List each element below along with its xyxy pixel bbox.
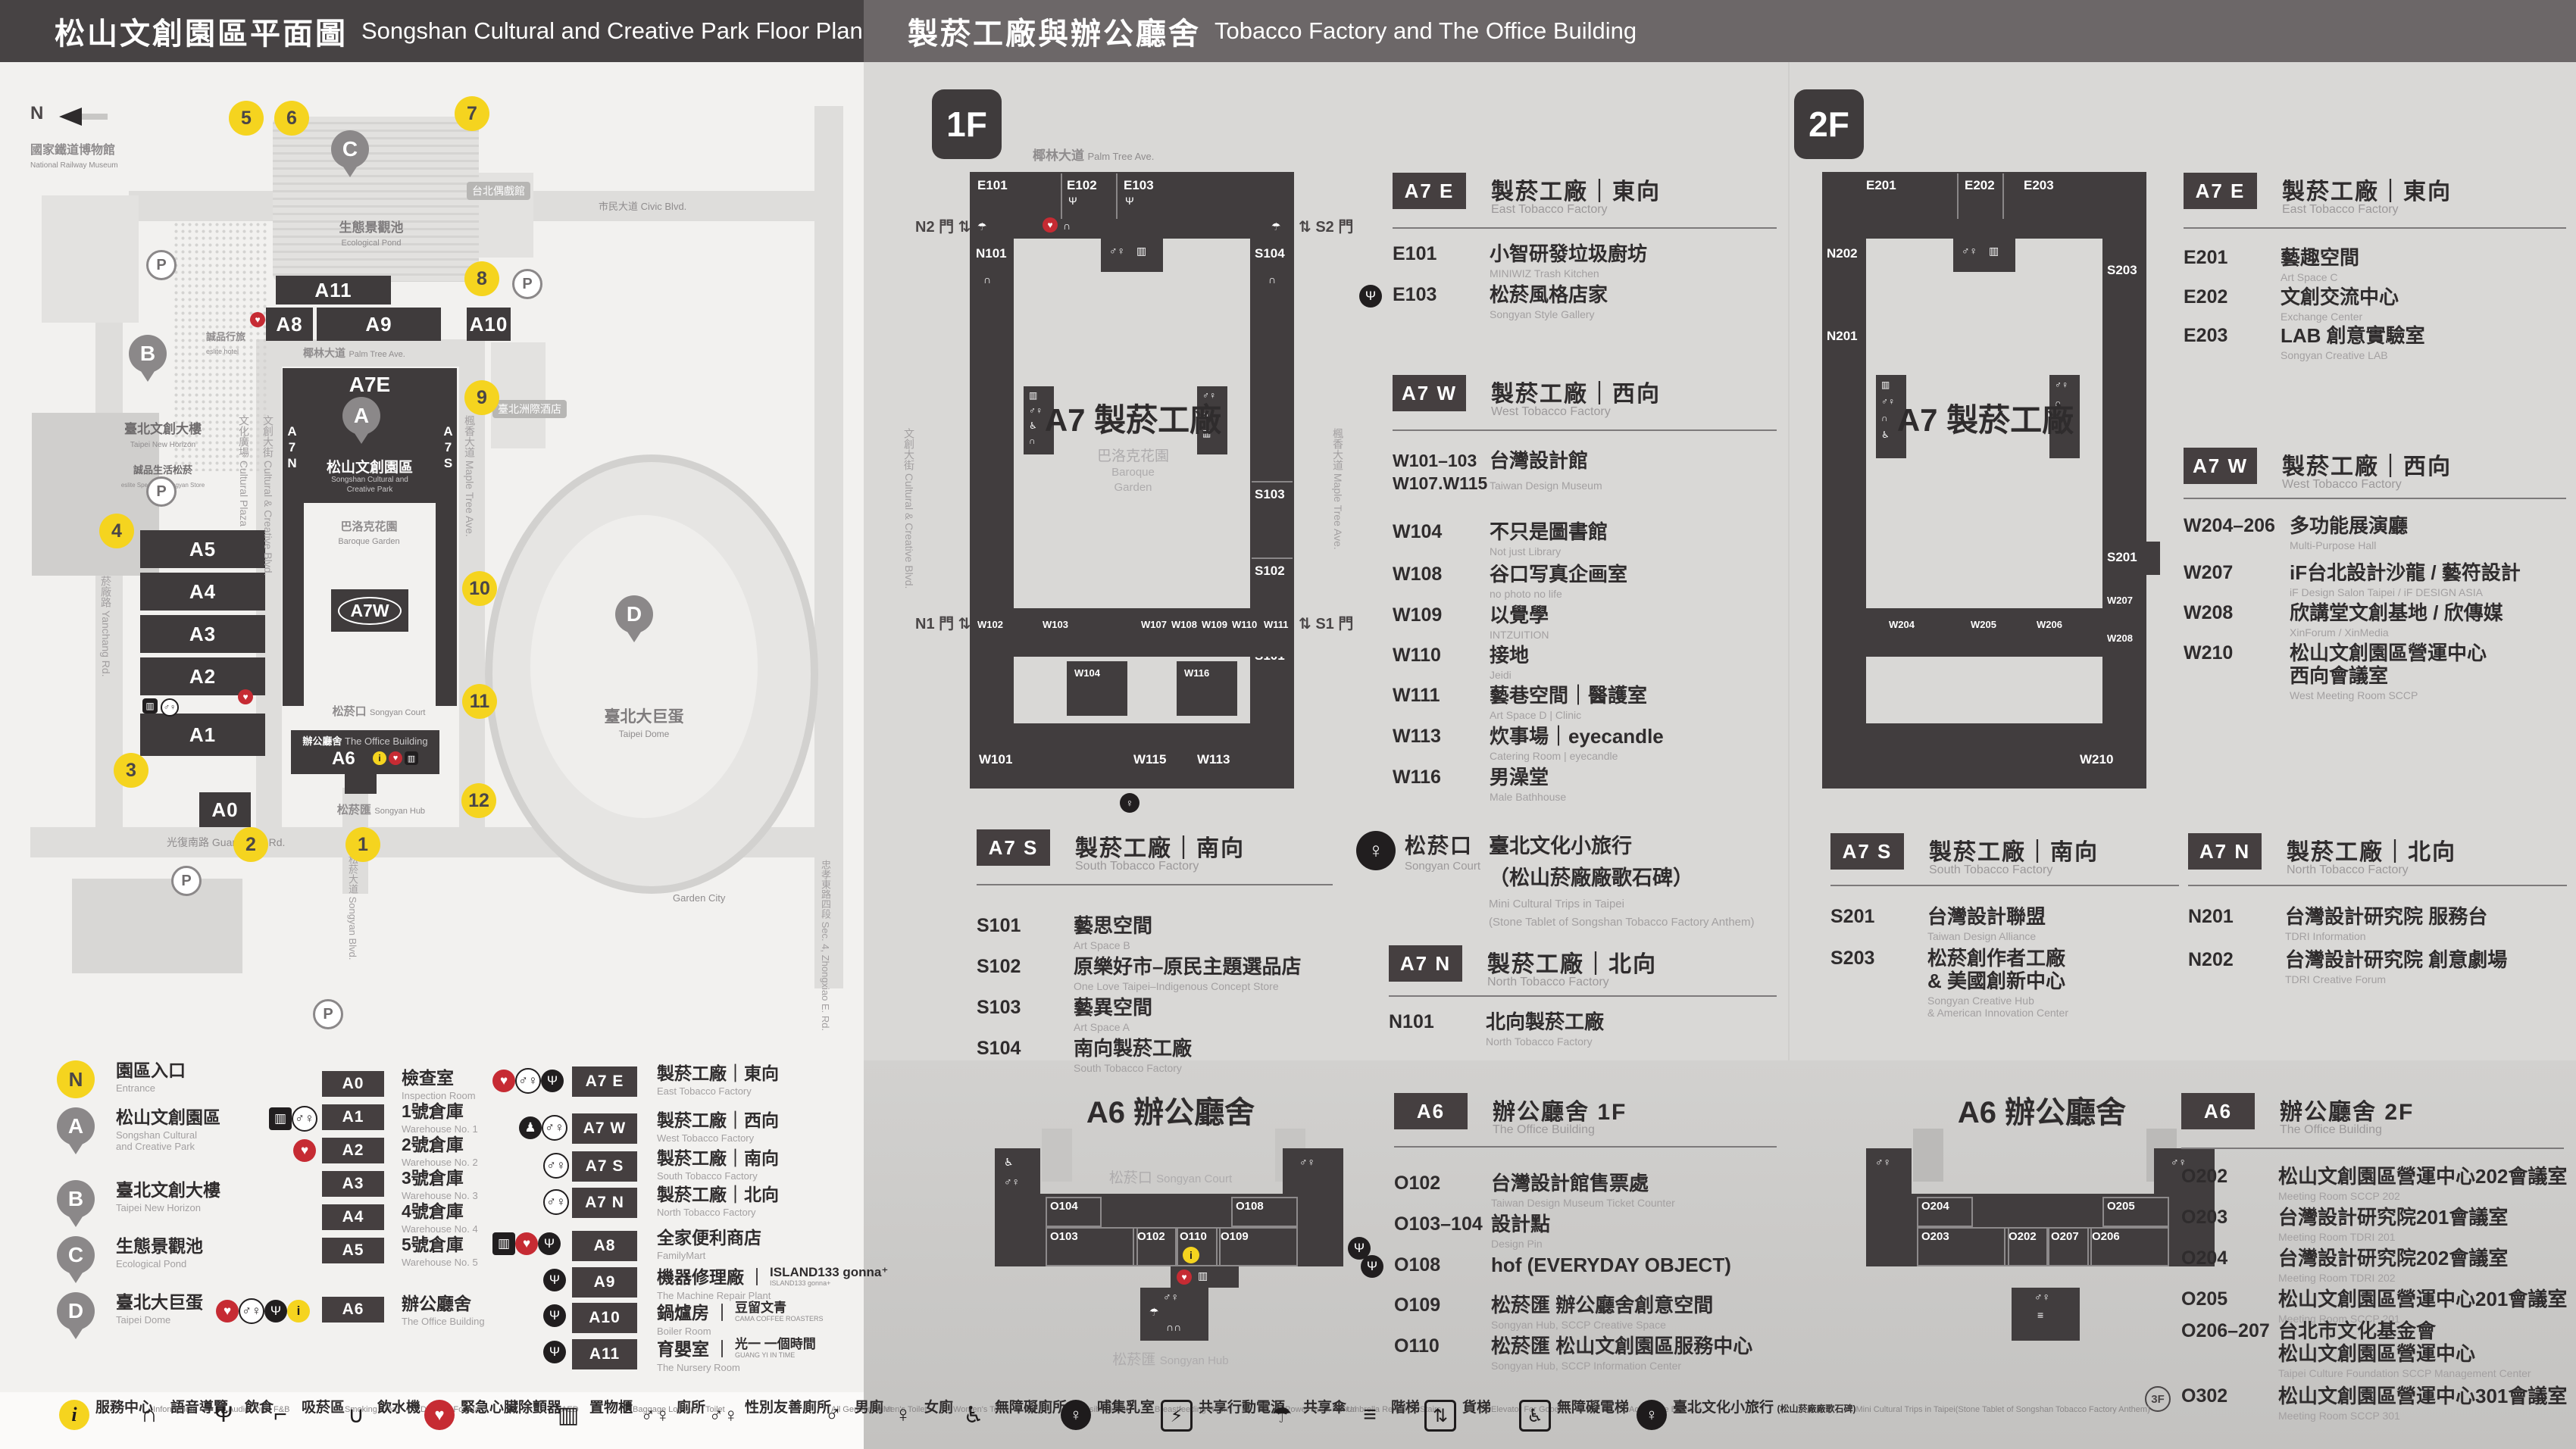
section-title-zh: 製菸工廠｜西向: [2282, 448, 2452, 481]
legend-brand-sub: GUANG YI IN TIME: [735, 1351, 816, 1359]
legend-en: East Tobacco Factory: [657, 1085, 779, 1097]
a6-stub-left: [1913, 1129, 1943, 1182]
building-a2-label: A2: [189, 665, 216, 689]
room-o109: O109: [1216, 1227, 1298, 1266]
room-name-zh: 台灣設計館: [1490, 449, 1602, 472]
audio-tour-icon: ∩∩: [1166, 1321, 1181, 1333]
room-o110: O110: [1175, 1227, 1221, 1266]
room-s104: S104: [1255, 246, 1285, 261]
section-title-zh: 製菸工廠｜南向: [1075, 829, 1245, 863]
room-code: W207: [2184, 561, 2290, 584]
fnb-icon: Ψ: [1125, 195, 1134, 207]
room-o204: O204: [1917, 1197, 1973, 1227]
legend-badge: A6: [322, 1297, 384, 1323]
a6-plan-1f: A6 辦公廳舍 ♿ ♂♀ ♂♀ 松菸口 Songyan Court O104 O…: [981, 1082, 1360, 1377]
room-name-zh: 台灣設計聯盟: [1927, 905, 2046, 928]
room-w205: W205: [1971, 619, 1996, 630]
umbrella-icon: ☂: [1267, 1400, 1297, 1430]
park-label-zh: 松山文創園區: [294, 456, 445, 476]
facility-zh: 臺北文化小旅行: [1673, 1400, 1774, 1416]
a7-west-wing-1f: [970, 239, 1014, 789]
a7-plan-title: A7 製菸工廠: [961, 395, 1305, 441]
room-divider: [2002, 173, 2004, 219]
room-code: W109: [1393, 604, 1490, 626]
room-code: O109: [1394, 1294, 1491, 1316]
section-title-zh: 辦公廳舍 2F: [2280, 1093, 2414, 1126]
info-icon: i: [287, 1300, 310, 1323]
street-creative-blvd: 文創大街 Cultural & Creative Blvd.: [261, 415, 276, 612]
entrance-5: 5: [229, 101, 264, 136]
room-code: S101: [977, 914, 1074, 937]
room-name-en: Catering Room | eyecandle: [1490, 750, 1664, 762]
legend-row-icons: ♥: [293, 1139, 316, 1162]
office-en: The Office Building: [345, 735, 428, 747]
songyan-court-map-label: 松菸口 Songyan Court: [322, 703, 436, 719]
toilet-icon: ♂♀: [543, 1153, 569, 1179]
list-item: S203松菸創作者工廠& 美國創新中心Songyan Creative Hub&…: [1830, 947, 2068, 1019]
room-name-zh2: 松山文創園區營運中心: [2278, 1342, 2531, 1365]
facility-zh: 吸菸區: [302, 1400, 345, 1416]
legend-en: Taipei Dome: [116, 1314, 203, 1326]
list-item: S101藝思空間Art Space B: [977, 914, 1152, 951]
room-o203: O203: [1917, 1227, 2009, 1266]
pond-en: Ecological Pond: [342, 239, 402, 248]
facility-zh: 無障礙廁所: [995, 1400, 1067, 1416]
a7-west-wing: [283, 503, 304, 706]
ecological-pond: [273, 117, 479, 282]
womens-toilet-icon: ♀: [888, 1400, 918, 1430]
room-name-zh: 炊事場｜eyecandle: [1490, 725, 1664, 748]
section-title-en: South Tobacco Factory: [1075, 860, 1199, 873]
horizon-zh: 臺北文創大樓: [124, 422, 202, 436]
room-w207: W207: [2107, 595, 2133, 606]
mens-toilet-icon: ♂: [818, 1400, 849, 1430]
legend-zh: 製菸工廠｜西向: [657, 1110, 779, 1131]
walking-person-icon: ♀: [1637, 1400, 1667, 1430]
legend-en: Boiler Room: [657, 1326, 824, 1337]
room-w110: W110: [1232, 619, 1257, 630]
a6-south-stub: [345, 774, 377, 794]
room-name-zh: 北向製菸工廠: [1486, 1010, 1604, 1033]
court-en: Songyan Court: [370, 708, 425, 717]
room-w208: W208: [2107, 632, 2133, 644]
pin-b: B: [129, 335, 167, 373]
entrance-3: 3: [114, 753, 148, 788]
room-code: W104: [1393, 520, 1490, 543]
room-w101: W101: [979, 752, 1012, 767]
section-badge: A7 S: [977, 829, 1050, 866]
a7-west-wing-2f: [1822, 239, 1866, 789]
room-name-zh: 藝巷空間｜醫護室: [1490, 684, 1647, 707]
toilet-icon: ♂♀: [2055, 379, 2068, 390]
room-o207: O207: [2046, 1227, 2092, 1266]
baroque-zh: 巴洛克花園: [340, 520, 397, 533]
pin-c: C: [331, 130, 369, 168]
legend-en2: and Creative Park: [116, 1141, 220, 1152]
room-code: W110: [1393, 644, 1490, 667]
legend-badge: A7 W: [572, 1113, 637, 1144]
drinking-fountain-icon: ∪: [341, 1400, 371, 1430]
list-item: S104南向製菸工廠South Tobacco Factory: [977, 1037, 1192, 1074]
hub-zh: 松菸匯: [337, 804, 371, 817]
room-name-zh: 不只是圖書館: [1490, 520, 1608, 543]
garden-city-label: Garden City: [673, 892, 725, 904]
section-badge: A7 W: [2184, 448, 2257, 484]
list-item: W204–206多功能展演廳Multi-Purpose Hall: [2184, 514, 2408, 551]
legend-badge: A3: [322, 1171, 384, 1197]
room-name-zh: 接地: [1490, 644, 1529, 667]
room-name-zh: 男澡堂: [1490, 766, 1566, 789]
room-code: O204: [2181, 1247, 2278, 1269]
section-title-zh: 製菸工廠｜東向: [2282, 173, 2452, 206]
room-name-en: Meeting Room TDRI 201: [2278, 1231, 2508, 1243]
room-s102: S102: [1255, 564, 1285, 579]
new-horizon-label: 臺北文創大樓 Taipei New Horizon: [98, 418, 227, 451]
section-badge: A6: [2181, 1093, 2255, 1129]
room-w109: W109: [1202, 619, 1227, 630]
palm-zh: 椰林大道: [303, 347, 345, 359]
room-name-en: Art Space C: [2281, 271, 2359, 283]
room-o205: O205: [2102, 1197, 2169, 1227]
room-w103: W103: [1043, 619, 1068, 630]
room-name-en: Multi-Purpose Hall: [2290, 539, 2408, 551]
entrance-legend-icon: N: [57, 1060, 95, 1098]
room-code: S104: [977, 1037, 1074, 1060]
facility-en: Mini Cultural Trips in Taipei: [1855, 1405, 1955, 1414]
legend-en: Warehouse No. 5: [402, 1257, 478, 1268]
plan1f-street-left: 文創大街 Cultural & Creative Blvd.: [902, 428, 917, 678]
room-e102: E102: [1067, 178, 1097, 193]
toilet-icon: ♂♀: [640, 1400, 671, 1430]
room-code: E203: [2184, 324, 2281, 347]
room-divider: [1957, 173, 1959, 219]
room-code: O302: [2181, 1385, 2278, 1407]
facility-zh: 飲水機: [377, 1400, 420, 1416]
songyan-hub-map-label: 松菸匯 Songyan Hub: [324, 801, 438, 817]
s201-tab: [2146, 542, 2160, 575]
legend-zh: 臺北文創大樓: [116, 1180, 220, 1201]
section-title-zh: 辦公廳舍 1F: [1493, 1093, 1627, 1126]
section-title-en: The Office Building: [1493, 1123, 1595, 1137]
room-name-zh: LAB 創意實驗室: [2281, 324, 2425, 347]
room-code: O102: [1394, 1172, 1491, 1194]
plan1f-street-right: 楓香大道 Maple Tree Ave.: [1330, 428, 1346, 678]
legend-row-icons: ♥♂♀Ψi: [216, 1298, 310, 1324]
room-code: E201: [2184, 246, 2281, 269]
facility-mini-cultural-trips: ♀臺北文化小旅行 (松山菸廠廠歌石碑)Mini Cultural Trips i…: [1637, 1400, 2150, 1430]
baroque-garden-plan-en2: Garden: [961, 481, 1305, 494]
list-item: O102台灣設計館售票處Taiwan Design Museum Ticket …: [1394, 1172, 1675, 1209]
pin-b-legend: B: [57, 1180, 95, 1218]
room-name-zh: 以覺學: [1490, 604, 1549, 626]
room-code: O202: [2181, 1165, 2278, 1188]
section-title-en: North Tobacco Factory: [1487, 976, 1609, 989]
room-name-zh: 藝趣空間: [2281, 246, 2359, 269]
umbrella-icon: ☂: [977, 220, 987, 233]
umbrella-icon: ☂: [1149, 1306, 1159, 1319]
separator: ｜: [714, 1304, 730, 1323]
legend-zh: 4號倉庫: [402, 1201, 478, 1222]
section-badge: A7 N: [2188, 833, 2262, 870]
room-name-en: Art Space A: [1074, 1021, 1152, 1033]
section-title-zh: 製菸工廠｜北向: [1487, 945, 1657, 979]
room-name-en: Taipei Culture Foundation SCCP Managemen…: [2278, 1367, 2531, 1379]
room-name-en: Songyan Hub, SCCP Creative Space: [1491, 1319, 1713, 1331]
audio-tour-icon: ∩: [134, 1400, 164, 1430]
room-w108: W108: [1171, 619, 1197, 630]
room-name-en: MINIWIZ Trash Kitchen: [1490, 267, 1647, 279]
toilet-icon: ♂♀: [1299, 1156, 1315, 1168]
facility-zh: 置物櫃: [589, 1400, 633, 1416]
room-name-en: North Tobacco Factory: [1486, 1035, 1604, 1048]
room-name-en: XinForum / XinMedia: [2290, 626, 2503, 639]
legend-row-icons: ♂♀: [543, 1153, 569, 1179]
building-a10-label: A10: [470, 313, 508, 336]
office-zh: 辦公廳舍: [302, 735, 342, 747]
legend-badge: A5: [322, 1238, 384, 1263]
facility-zh: 男廁: [855, 1400, 883, 1416]
a7-plan-title-2f: A7 製菸工廠: [1813, 395, 2158, 441]
info-icon: i: [373, 751, 386, 765]
separator: ｜: [749, 1268, 765, 1287]
aed-icon: ♥: [250, 312, 265, 327]
room-code: W108: [1393, 563, 1490, 586]
breastfeeding-icon: ♀: [1061, 1400, 1091, 1430]
legend-badge: A11: [572, 1339, 637, 1369]
room-name-en: Songyan Hub, SCCP Information Center: [1491, 1360, 1752, 1372]
goods-elevator-icon: ▥: [1198, 1269, 1208, 1282]
divider: [1830, 885, 2179, 886]
facility-zh: 緊急心臟除顫器: [461, 1400, 561, 1416]
room-e203: E203: [2024, 178, 2054, 193]
taipei-dome-label: 臺北大巨蛋 Taipei Dome: [591, 704, 697, 741]
parking-icon: P: [146, 476, 177, 507]
parking-icon: P: [313, 999, 343, 1029]
section-title-en: North Tobacco Factory: [2287, 863, 2409, 877]
room-name-zh: iF台北設計沙龍 / 藝符設計: [2290, 561, 2521, 584]
room-w206: W206: [2037, 619, 2062, 630]
divider: [1393, 227, 1777, 229]
legend-en: FamilyMart: [657, 1250, 761, 1261]
room-code: S103: [977, 996, 1074, 1019]
fnb-icon: Ψ: [543, 1269, 566, 1291]
room-code: S203: [1830, 947, 1927, 970]
locker-icon: ▥: [553, 1400, 583, 1430]
room-name-zh: 松山文創園區營運中心202會議室: [2278, 1165, 2567, 1188]
legend-en: The Nursery Room: [657, 1362, 816, 1373]
list-item: E201藝趣空間Art Space C: [2184, 246, 2359, 283]
list-item: E101小智研發垃圾廚坊MINIWIZ Trash Kitchen: [1393, 242, 1647, 279]
section-badge: A7 S: [1830, 833, 1904, 870]
room-e101: E101: [977, 178, 1008, 193]
room-o102: O102: [1133, 1227, 1178, 1266]
entrance-12: 12: [461, 783, 496, 818]
room-name-en: Songyan Creative Hub: [1927, 995, 2068, 1007]
tour-icon: ♟: [519, 1116, 542, 1139]
building-a9-label: A9: [365, 313, 392, 336]
baroque-en: Baroque Garden: [338, 537, 399, 546]
section-title-en: West Tobacco Factory: [2282, 478, 2402, 492]
compass-n-label: N: [30, 103, 43, 124]
room-divider: [1061, 173, 1062, 219]
room-name-en: Male Bathhouse: [1490, 791, 1566, 803]
pond-zh: 生態景觀池: [339, 220, 404, 235]
room-o206: O206: [2087, 1227, 2169, 1266]
room-code: O205: [2181, 1288, 2278, 1310]
room-o103: O103: [1046, 1227, 1138, 1266]
pin-c-legend: C: [57, 1236, 95, 1274]
legend-en: Warehouse No. 4: [402, 1223, 478, 1235]
room-name-en: Design Pin: [1491, 1238, 1550, 1250]
toilet-icon: ♂♀: [292, 1106, 317, 1132]
room-name-zh2: & 美國創新中心: [1927, 970, 2068, 992]
room-n201: N201: [1827, 329, 1858, 344]
room-name-en: Songyan Style Gallery: [1490, 308, 1608, 320]
room-code: N101: [1389, 1010, 1486, 1033]
baroque-garden-label: 巴洛克花園 Baroque Garden: [316, 518, 422, 548]
room-name-en: West Meeting Room SCCP: [2290, 689, 2487, 701]
section-title-zh: 製菸工廠｜南向: [1929, 833, 2099, 867]
facility-zh: 階梯: [1391, 1400, 1420, 1416]
entrance-9: 9: [464, 380, 499, 415]
legend-row-icons: ▥♥Ψ: [492, 1232, 561, 1255]
legend-zh: 5號倉庫: [402, 1235, 478, 1255]
legend-badge: A10: [572, 1303, 637, 1333]
legend-en: Ecological Pond: [116, 1258, 203, 1269]
aed-icon: ♥: [238, 689, 253, 704]
railway-en: National Railway Museum: [30, 161, 118, 170]
toilet-icon: ♂♀: [1875, 1156, 1891, 1168]
legend-row-icons: Ψ: [543, 1269, 566, 1291]
a6-plan-title-2f: A6 辦公廳舍: [1852, 1088, 2231, 1132]
legend-zh: 製菸工廠｜北向: [657, 1185, 779, 1205]
room-code: N201: [2188, 905, 2285, 928]
park-label-en1: Songshan Cultural and: [294, 476, 445, 484]
fnb-icon: Ψ: [538, 1232, 561, 1255]
building-a5-label: A5: [189, 538, 216, 561]
room-divider: [1252, 557, 1293, 559]
room-w115: W115: [1133, 752, 1166, 767]
court-item-zh1: 臺北文化小旅行: [1489, 829, 1632, 859]
list-item: W208欣講堂文創基地 / 欣傳媒XinForum / XinMedia: [2184, 601, 2503, 639]
list-item: W110接地Jeidi: [1393, 644, 1529, 681]
toilet-icon: ♂♀: [1109, 245, 1125, 257]
facility-zh2: (松山菸廠廠歌石碑): [1777, 1404, 1855, 1414]
legend-en: Taipei New Horizon: [116, 1202, 220, 1213]
legend-zh: 機器修理廠: [657, 1267, 744, 1287]
gate-n2: N2 門 ⇅: [915, 214, 971, 236]
legend-en: South Tobacco Factory: [657, 1170, 779, 1182]
toilet-icon: ♂♀: [543, 1189, 569, 1215]
fnb-icon: Ψ: [543, 1341, 566, 1363]
divider: [2181, 1148, 2564, 1149]
room-name-en2: & American Innovation Center: [1927, 1007, 2068, 1019]
list-item: O202松山文創園區營運中心202會議室Meeting Room SCCP 20…: [2181, 1165, 2567, 1202]
room-w113: W113: [1197, 752, 1230, 767]
room-name-en: iF Design Salon Taipei / iF DESIGN ASIA: [2290, 586, 2521, 598]
building-a7w-label: A7W: [338, 597, 401, 625]
room-name-zh: 台北市文化基金會: [2278, 1319, 2531, 1342]
section-badge: A7 N: [1389, 945, 1462, 982]
court-item-en1: Mini Cultural Trips in Taipei: [1489, 898, 1624, 910]
aed-icon: ♥: [216, 1300, 239, 1323]
songyan-court-plan-label: 松菸口 Songyan Court: [1072, 1166, 1269, 1187]
room-code: N202: [2188, 948, 2285, 971]
fnb-icon: Ψ: [1361, 1255, 1383, 1278]
room-name-zh: 原樂好市–原民主題選品店: [1074, 955, 1301, 978]
room-code: S102: [977, 955, 1074, 978]
legend-zh: 松山文創園區: [116, 1107, 220, 1128]
legend-badge: A0: [322, 1071, 384, 1097]
room-name-zh: hof (EVERYDAY OBJECT): [1491, 1254, 1731, 1276]
room-name-en: Art Space B: [1074, 939, 1152, 951]
audio-tour-icon: ∩: [983, 273, 991, 286]
aed-icon: ♥: [1043, 217, 1058, 233]
room-name-en: Jeidi: [1490, 669, 1529, 681]
baroque-garden-plan-zh: 巴洛克花園: [961, 445, 1305, 465]
building-a4-label: A4: [189, 580, 216, 604]
divider: [2184, 498, 2566, 499]
section-title-en: East Tobacco Factory: [1491, 203, 1608, 217]
eslite-hotel-en: eslite hotel: [206, 348, 239, 355]
list-item: W109以覺學INTZUITION: [1393, 604, 1549, 641]
room-w210: W210: [2080, 752, 2113, 767]
building-a1-label: A1: [189, 723, 216, 747]
list-item: 3F O302松山文創園區營運中心301會議室Meeting Room SCCP…: [2181, 1385, 2567, 1422]
divider: [1394, 1146, 1777, 1148]
room-name-zh: 松山文創園區營運中心201會議室: [2278, 1288, 2567, 1310]
pin-d-legend: D: [57, 1292, 95, 1330]
walking-person-icon: ♀: [1356, 831, 1396, 870]
legend-zh: 鍋爐房: [657, 1303, 709, 1323]
legend-badge: A7 S: [572, 1151, 637, 1182]
legend-zh: 生態景觀池: [116, 1236, 203, 1257]
facility-zh: 共享傘: [1303, 1400, 1346, 1416]
legend-row-icons: ♂♀: [543, 1189, 569, 1215]
power-bank-icon: ⚡: [1161, 1400, 1193, 1432]
railway-museum-label: 國家鐵道博物館 National Railway Museum: [30, 139, 118, 171]
list-item: Ψ O108hof (EVERYDAY OBJECT): [1394, 1254, 1731, 1276]
court-zh: 松菸口: [333, 705, 367, 718]
legend-en: West Tobacco Factory: [657, 1132, 779, 1144]
legend-zh: 檢查室: [402, 1068, 476, 1088]
legend-brand-sub: CAMA COFFEE ROASTERS: [735, 1315, 824, 1323]
legend-zh: 園區入口: [116, 1060, 186, 1081]
legend-badge: A8: [572, 1231, 637, 1261]
room-code: E101: [1393, 242, 1490, 265]
plan1f-street-top: 椰林大道 Palm Tree Ave.: [1033, 145, 1154, 164]
room-code: S201: [1830, 905, 1927, 928]
compass-tail: [82, 114, 108, 120]
aed-icon: ♥: [1177, 1269, 1192, 1285]
eslite-hotel-zh: 誠品行旅: [206, 331, 245, 342]
room-name-en: no photo no life: [1490, 588, 1627, 600]
office-building-map-label: 辦公廳舍 The Office Building: [297, 733, 433, 748]
floorplan-1f: 椰林大道 Palm Tree Ave. E101 E102 E103 Ψ Ψ N…: [961, 148, 1305, 814]
divider: [1389, 995, 1777, 997]
room-code: W113: [1393, 725, 1490, 748]
building-a1: A1: [140, 714, 265, 756]
taipei-dome-field: [530, 515, 758, 818]
list-item: W101–103W107.W115台灣設計館Taiwan Design Muse…: [1393, 449, 1602, 495]
building-a10: A10: [467, 308, 511, 341]
legend-row-icons: ♥♂♀Ψ: [492, 1068, 564, 1094]
gate-s2: ⇅ S2 門: [1299, 214, 1353, 236]
room-w102: W102: [977, 619, 1003, 630]
list-item: E203LAB 創意實驗室Songyan Creative LAB: [2184, 324, 2425, 361]
list-item: O109松菸匯 辦公廳舍創意空間Songyan Hub, SCCP Creati…: [1394, 1294, 1713, 1331]
room-name-en: Taiwan Design Museum: [1490, 479, 1602, 492]
